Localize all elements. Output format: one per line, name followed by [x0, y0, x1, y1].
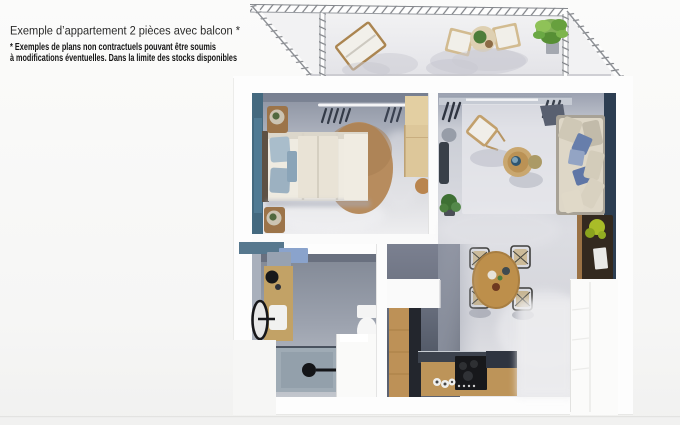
svg-text:à modifications éventuelles. D: à modifications éventuelles. Dans la lim… — [10, 53, 237, 64]
svg-text:* Exemples de plans non contra: * Exemples de plans non contractuels pou… — [10, 42, 216, 53]
svg-text:Exemple d’appartement 2 pièces: Exemple d’appartement 2 pièces avec balc… — [10, 23, 240, 37]
